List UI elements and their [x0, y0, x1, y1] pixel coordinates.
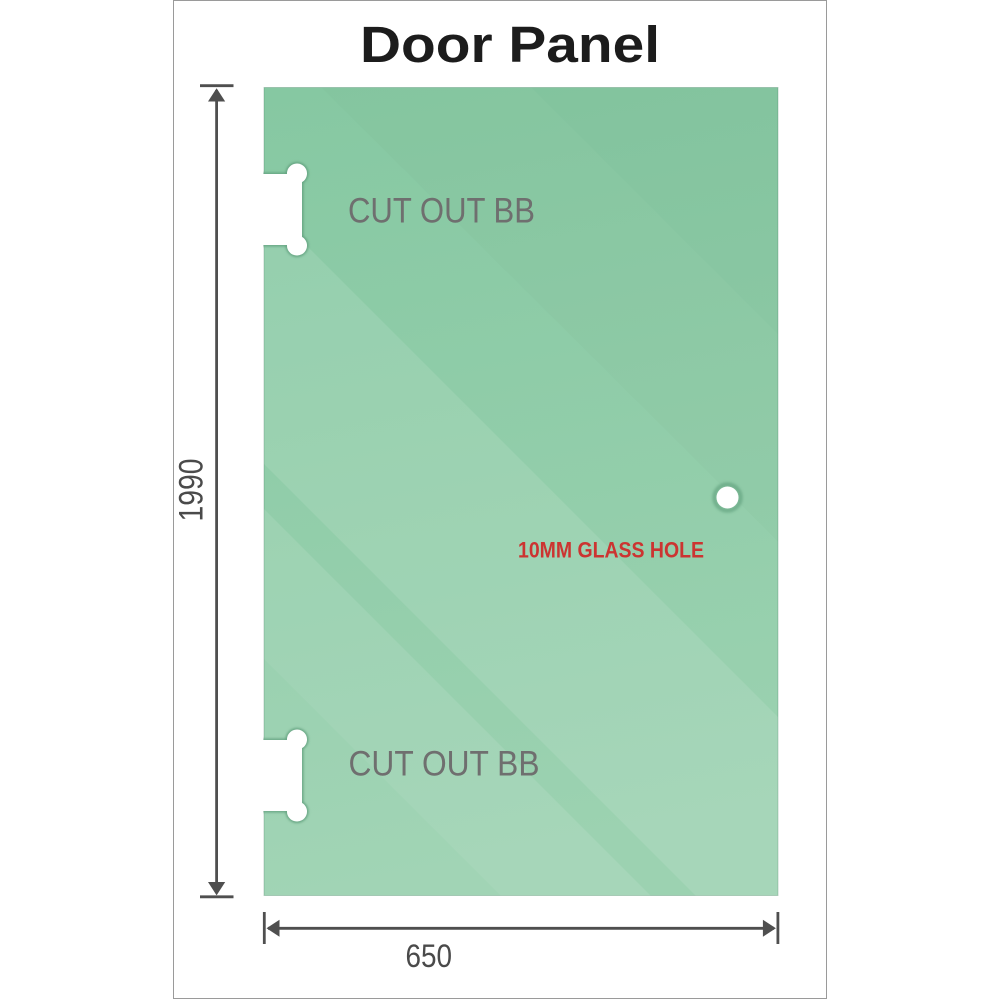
svg-text:CUT OUT BB: CUT OUT BB: [349, 745, 540, 784]
svg-text:650: 650: [406, 938, 453, 974]
svg-text:1990: 1990: [173, 459, 211, 522]
svg-text:CUT OUT BB: CUT OUT BB: [348, 192, 535, 231]
svg-text:Door Panel: Door Panel: [360, 16, 660, 73]
svg-text:10MM GLASS HOLE: 10MM GLASS HOLE: [518, 538, 704, 563]
